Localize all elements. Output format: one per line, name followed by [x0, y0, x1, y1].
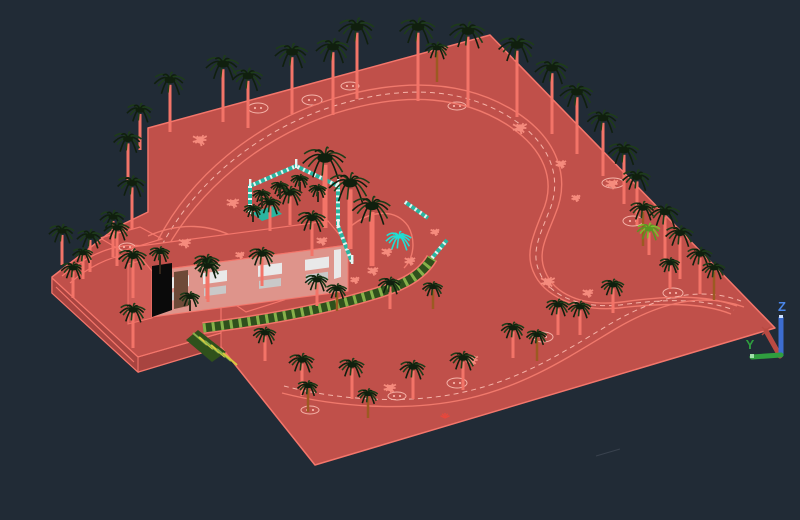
palm-crown-center	[462, 27, 475, 35]
palm-crown-center	[297, 177, 303, 181]
palm-crown-center	[129, 307, 138, 313]
oval-dot	[312, 409, 314, 411]
shrub-center	[230, 200, 236, 206]
shrub-center	[384, 249, 389, 254]
shrub-center	[516, 124, 523, 131]
cad-viewport-canvas[interactable]: Z Y	[0, 0, 800, 520]
palm-crown-center	[217, 60, 229, 67]
palm-crown-center	[351, 23, 364, 31]
shrub-center	[407, 258, 412, 263]
palm-crown-center	[598, 115, 609, 122]
shrub-center	[319, 238, 324, 243]
palm-crown-center	[666, 261, 673, 265]
oval-dot	[459, 382, 461, 384]
palm-crown-center	[675, 230, 685, 236]
fence-post	[295, 159, 297, 168]
ucs-y-axis	[752, 355, 781, 357]
palm-crown-center	[258, 251, 267, 257]
palm-crown-center	[113, 225, 122, 231]
palm-crown-center	[632, 174, 642, 180]
palm-crown-center	[333, 287, 340, 291]
oval-dot	[346, 85, 348, 87]
shrub-center	[558, 161, 563, 166]
palm-crown-center	[315, 187, 321, 191]
shrub-center	[353, 278, 358, 283]
oval-dot	[629, 220, 631, 222]
shrub-center	[370, 268, 375, 273]
model-space-scene: Z Y	[0, 0, 800, 520]
palm-crown-center	[313, 277, 321, 282]
palm-crown-center	[259, 192, 265, 196]
shrub-center	[387, 385, 393, 391]
villa-side-door	[334, 249, 341, 279]
palm-crown-center	[619, 147, 630, 154]
fence-post	[337, 219, 339, 228]
oval-dot	[308, 99, 310, 101]
oval-dot	[393, 395, 395, 397]
shrub-center	[544, 278, 551, 285]
palm-crown-center	[571, 88, 583, 95]
shrub-center	[433, 230, 438, 235]
palm-crown-center	[136, 107, 145, 113]
palm-crown-center	[277, 184, 283, 188]
palm-crown-center	[204, 263, 213, 269]
palm-crown-center	[348, 362, 357, 368]
palm-crown-center	[386, 280, 394, 285]
fence-post	[351, 255, 353, 264]
villa-doorway-shadow	[152, 263, 172, 317]
palm-tree	[114, 132, 142, 181]
palm-crown-center	[459, 355, 468, 361]
palm-crown-center	[710, 265, 718, 270]
shrub-center	[574, 196, 579, 201]
palm-crown-center	[243, 73, 254, 80]
fence-post	[249, 179, 251, 188]
oval-dot	[675, 292, 677, 294]
palm-crown-center	[317, 153, 332, 163]
palm-crown-center	[156, 250, 163, 254]
ucs-z-axis-tip	[779, 315, 783, 318]
palm-crown-center	[433, 45, 441, 50]
palm-crown-center	[546, 64, 558, 71]
palm-crown-center	[645, 226, 653, 231]
oval-dot	[123, 246, 125, 248]
oval-dot	[129, 246, 131, 248]
ucs-y-label: Y	[746, 337, 755, 352]
shrub-center	[238, 253, 243, 258]
palm-crown-center	[365, 202, 379, 210]
palm-crown-center	[261, 330, 269, 335]
oval-dot	[260, 107, 262, 109]
palm-crown-center	[86, 233, 95, 239]
palm-crown-center	[364, 392, 371, 396]
ucs-z-label: Z	[778, 299, 786, 314]
palm-crown-center	[186, 295, 193, 299]
oval-dot	[453, 105, 455, 107]
site-model	[49, 18, 775, 465]
palm-crown-center	[639, 205, 648, 211]
shrub-center	[182, 240, 188, 246]
palm-crown-center	[165, 77, 176, 84]
palm-crown-center	[123, 136, 133, 142]
palm-crown-center	[286, 48, 298, 55]
palm-crown-center	[696, 251, 705, 257]
palm-crown-center	[250, 207, 256, 211]
palm-crown-center	[298, 357, 307, 363]
palm-crown-center	[429, 285, 436, 289]
palm-crown-center	[412, 23, 425, 31]
oval-dot	[453, 382, 455, 384]
palm-crown-center	[609, 282, 617, 287]
palm-tree	[49, 225, 74, 265]
shrub-center	[585, 290, 590, 295]
oval-dot	[314, 99, 316, 101]
oval-dot	[399, 395, 401, 397]
palm-crown-center	[109, 214, 118, 220]
palm-crown-center	[533, 333, 540, 337]
shrub-center	[196, 136, 203, 143]
oval-dot	[669, 292, 671, 294]
shrub-center	[609, 181, 615, 187]
palm-crown-center	[509, 325, 517, 330]
ucs-y-axis-tip	[750, 354, 754, 358]
palm-crown-center	[69, 265, 77, 270]
palm-crown-center	[343, 179, 357, 188]
palm-crown-center	[307, 215, 317, 221]
palm-crown-center	[409, 364, 418, 370]
palm-crown-center	[511, 41, 524, 49]
palm-crown-center	[576, 304, 584, 309]
palm-crown-center	[327, 43, 339, 50]
palm-crown-center	[660, 209, 671, 216]
palm-crown-center	[127, 180, 137, 186]
stray-edge-line	[596, 449, 620, 456]
palm-crown-center	[304, 384, 311, 388]
ucs-x-axis	[766, 331, 780, 356]
palm-crown-center	[58, 228, 67, 234]
palm-crown-center	[79, 251, 86, 255]
palm-crown-center	[554, 302, 562, 307]
palm-crown-center	[128, 253, 138, 259]
oval-dot	[352, 85, 354, 87]
oval-dot	[254, 107, 256, 109]
